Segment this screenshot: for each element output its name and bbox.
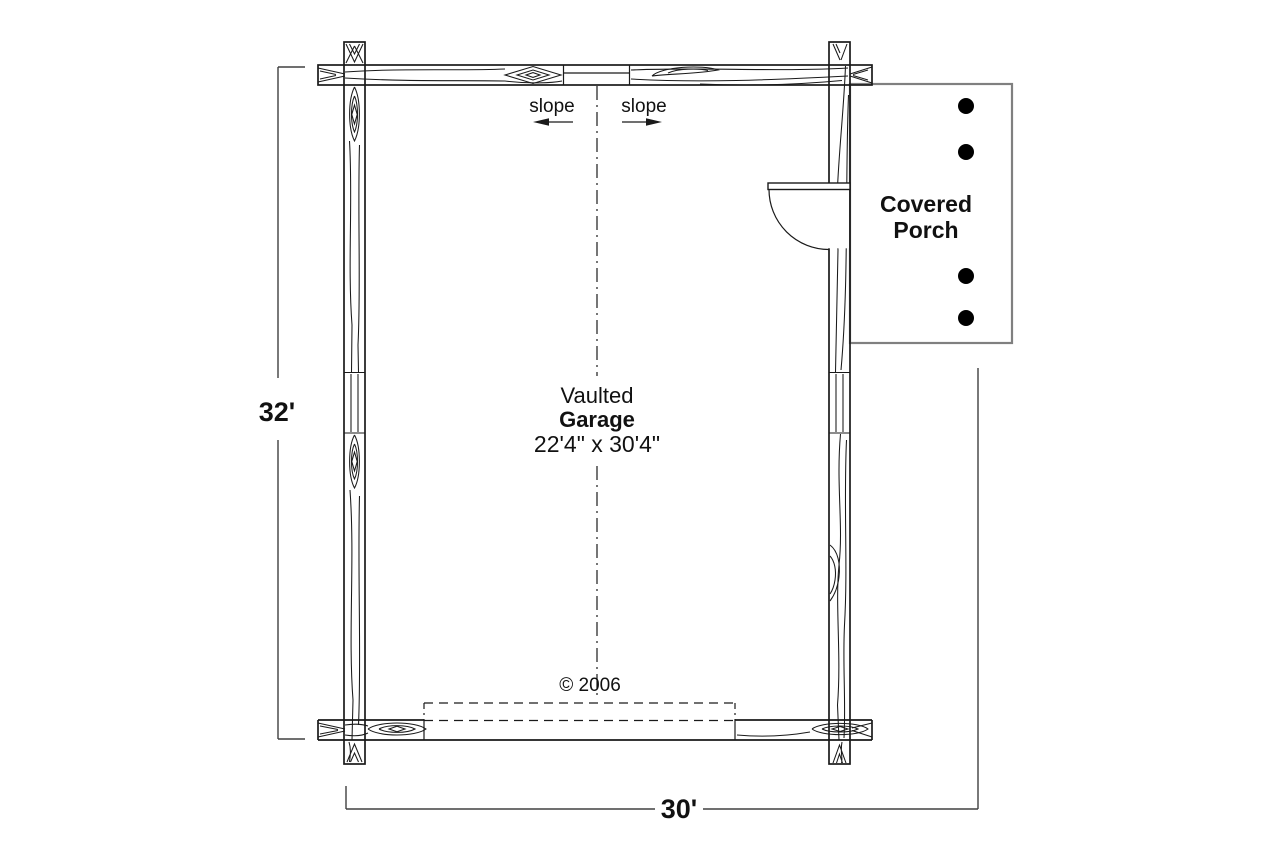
dimension-bottom-value: 30'	[661, 794, 697, 824]
porch-label-line1: Covered	[880, 191, 972, 217]
door-leaf	[768, 183, 850, 190]
top-wall	[318, 65, 872, 85]
slope-annotation-right: slope	[621, 96, 666, 126]
room-dimensions: 22'4" x 30'4"	[534, 431, 660, 457]
bottom-wall-wood-grain	[318, 723, 872, 737]
dimension-left-value: 32'	[259, 397, 295, 427]
slope-label-left: slope	[529, 96, 574, 117]
entry-door	[768, 183, 850, 250]
covered-porch: Covered Porch	[850, 84, 1012, 343]
door-swing-arc	[769, 190, 829, 250]
door-opening	[828, 190, 849, 249]
bottom-wall	[318, 703, 872, 740]
porch-post	[958, 98, 974, 114]
room-name-line2: Garage	[559, 407, 635, 432]
porch-post	[958, 144, 974, 160]
porch-label-line2: Porch	[893, 217, 958, 243]
left-wall-outline	[344, 42, 365, 764]
porch-post	[958, 268, 974, 284]
garage-door-opening	[424, 703, 735, 740]
left-wall	[344, 42, 365, 764]
garage-door-jambs	[424, 720, 735, 740]
porch-post	[958, 310, 974, 326]
slope-label-right: slope	[621, 96, 666, 117]
right-wall	[829, 42, 850, 764]
slope-annotation-left: slope	[529, 96, 574, 126]
left-wall-wood-grain	[344, 44, 365, 762]
dimension-bottom-line	[346, 368, 978, 809]
slope-arrow-left-icon	[533, 118, 573, 126]
copyright-label: © 2006	[559, 675, 621, 696]
floor-plan-canvas: Covered Porch	[0, 0, 1280, 853]
ridge-beam-section	[564, 65, 630, 85]
floor-plan-page: Covered Porch	[0, 0, 1280, 853]
garage-door-dashed-sides	[424, 703, 735, 720]
room-label: Vaulted Garage 22'4" x 30'4"	[534, 383, 660, 457]
dimension-left: 32'	[259, 67, 305, 739]
right-wall-wood-grain	[829, 44, 850, 763]
slope-arrow-right-icon	[622, 118, 662, 126]
dimension-bottom: 30'	[346, 368, 978, 824]
room-name-line1: Vaulted	[561, 383, 634, 408]
